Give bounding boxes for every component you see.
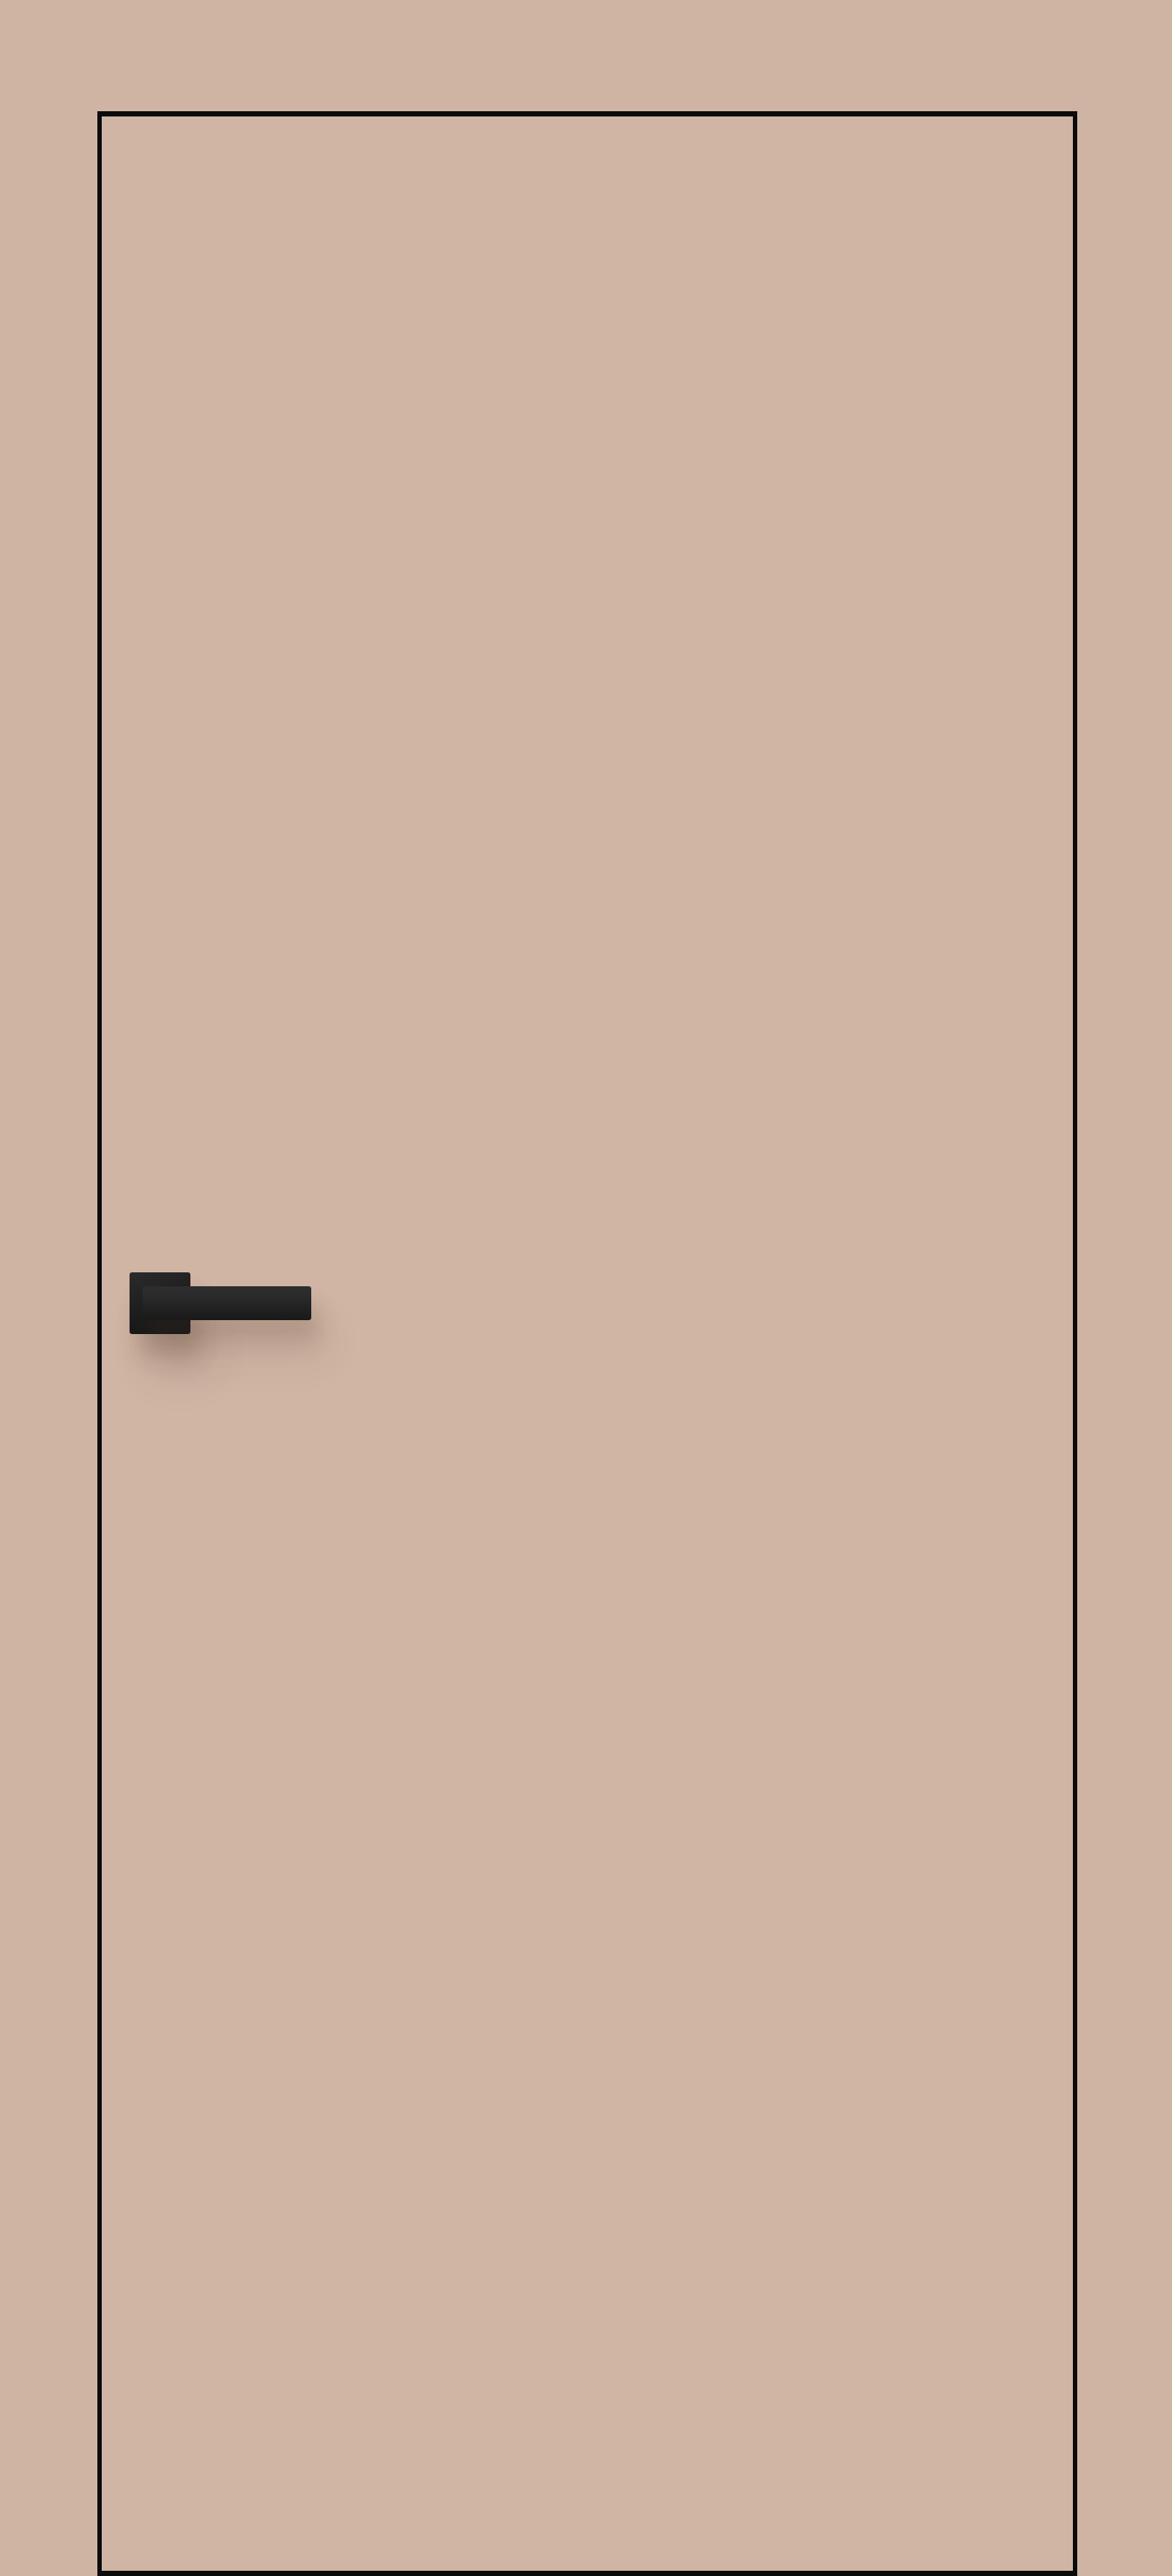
handle-lever (143, 1286, 311, 1320)
wall-background (0, 0, 1172, 2576)
door-leaf (97, 111, 1077, 2576)
